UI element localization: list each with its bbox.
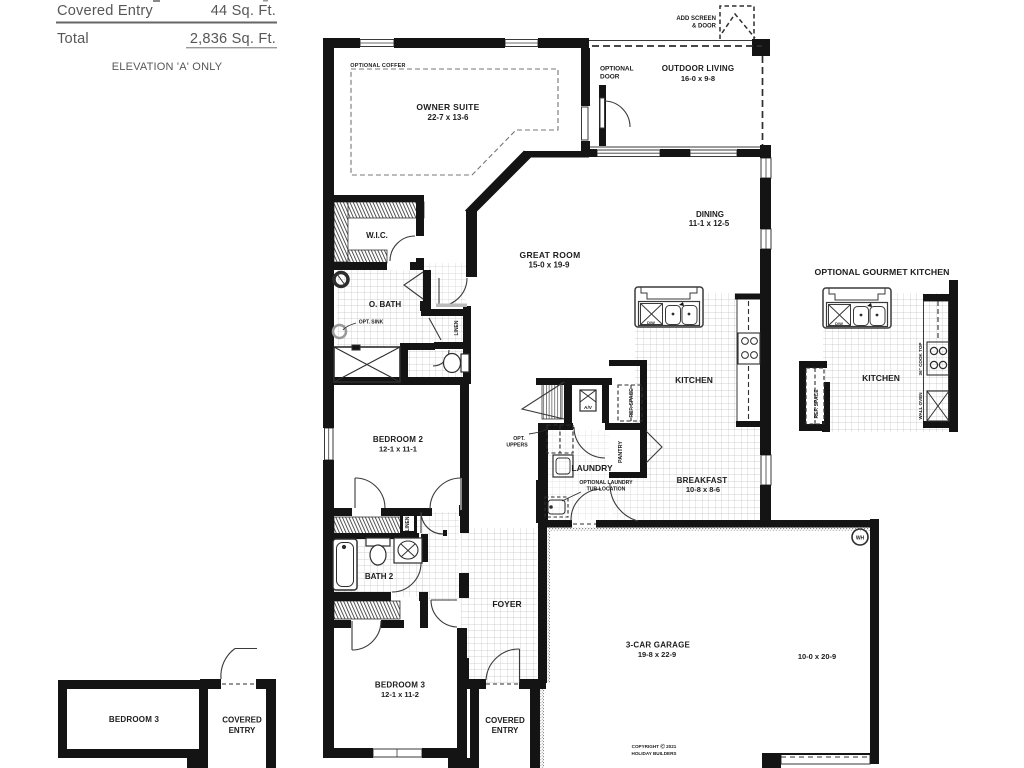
svg-text:& DOOR: & DOOR xyxy=(692,24,717,30)
svg-text:11-1 x 12-5: 11-1 x 12-5 xyxy=(689,219,730,228)
svg-text:BEDROOM 3: BEDROOM 3 xyxy=(109,715,160,724)
svg-text:22-7 x 13-6: 22-7 x 13-6 xyxy=(428,113,469,122)
svg-text:OPT. SINK: OPT. SINK xyxy=(359,320,384,326)
svg-text:UPPERS: UPPERS xyxy=(506,443,528,449)
svg-text:12-1 x 11-2: 12-1 x 11-2 xyxy=(381,690,419,699)
svg-text:GREAT ROOM: GREAT ROOM xyxy=(520,250,581,260)
svg-text:KITCHEN: KITCHEN xyxy=(862,373,900,383)
svg-text:44 Sq. Ft.: 44 Sq. Ft. xyxy=(211,3,276,19)
svg-text:W.I.C.: W.I.C. xyxy=(366,231,388,240)
svg-text:16-0 x 9-8: 16-0 x 9-8 xyxy=(681,74,715,83)
svg-text:2,836 Sq. Ft.: 2,836 Sq. Ft. xyxy=(190,31,276,47)
svg-text:ENTRY: ENTRY xyxy=(229,726,256,735)
svg-text:WALL OVEN: WALL OVEN xyxy=(918,392,923,420)
svg-text:OUTDOOR LIVING: OUTDOOR LIVING xyxy=(662,64,735,73)
svg-text:FOYER: FOYER xyxy=(492,599,521,609)
svg-text:PANTRY: PANTRY xyxy=(618,441,624,463)
svg-text:10-0 x 20-9: 10-0 x 20-9 xyxy=(798,652,836,661)
svg-text:BREAKFAST: BREAKFAST xyxy=(677,476,728,485)
svg-text:REF. SPACE: REF. SPACE xyxy=(814,389,820,419)
svg-text:OPTIONAL: OPTIONAL xyxy=(600,66,634,73)
svg-text:O. BATH: O. BATH xyxy=(369,300,402,309)
svg-text:OPTIONAL LAUNDRY: OPTIONAL LAUNDRY xyxy=(579,480,633,486)
svg-text:WH: WH xyxy=(856,536,865,542)
svg-text:3-CAR GARAGE: 3-CAR GARAGE xyxy=(626,641,691,650)
svg-text:OPT.: OPT. xyxy=(513,436,525,442)
svg-text:D/W: D/W xyxy=(835,321,843,326)
svg-text:KITCHEN: KITCHEN xyxy=(675,375,713,385)
svg-text:ENTRY: ENTRY xyxy=(492,726,519,735)
svg-text:COPYRIGHT Ⓒ 2021: COPYRIGHT Ⓒ 2021 xyxy=(632,743,677,750)
svg-text:12-1 x 11-1: 12-1 x 11-1 xyxy=(379,445,417,454)
svg-text:OPTIONAL GOURMET KITCHEN: OPTIONAL GOURMET KITCHEN xyxy=(815,267,950,277)
svg-text:OPTIONAL COFFER: OPTIONAL COFFER xyxy=(350,63,405,69)
svg-text:DINING: DINING xyxy=(696,210,724,219)
svg-text:COVERED: COVERED xyxy=(485,716,525,725)
svg-text:DOOR: DOOR xyxy=(600,74,620,81)
svg-text:Covered Entry: Covered Entry xyxy=(57,3,153,19)
svg-text:A/V: A/V xyxy=(584,405,593,411)
svg-text:OWNER SUITE: OWNER SUITE xyxy=(416,102,479,112)
svg-text:ADD SCREEN: ADD SCREEN xyxy=(676,16,716,22)
svg-text:TUB LOCATION: TUB LOCATION xyxy=(587,487,626,493)
svg-text:10-8 x 8-6: 10-8 x 8-6 xyxy=(686,485,720,494)
svg-text:36" COOK TOP: 36" COOK TOP xyxy=(918,343,923,376)
svg-text:15-0 x 19-9: 15-0 x 19-9 xyxy=(529,261,570,270)
svg-text:19-8 x 22-9: 19-8 x 22-9 xyxy=(638,650,676,659)
svg-text:LINEN: LINEN xyxy=(454,320,460,335)
svg-text:Total: Total xyxy=(57,31,89,47)
svg-text:COVERED: COVERED xyxy=(222,716,262,725)
svg-text:LAUNDRY: LAUNDRY xyxy=(571,463,613,473)
svg-text:BATH 2: BATH 2 xyxy=(365,572,394,581)
svg-text:REF. SPACE: REF. SPACE xyxy=(629,388,635,418)
svg-text:LINEN: LINEN xyxy=(405,516,411,531)
svg-text:BEDROOM 2: BEDROOM 2 xyxy=(373,435,424,444)
svg-text:HOLIDAY BUILDERS: HOLIDAY BUILDERS xyxy=(632,751,677,756)
svg-text:BEDROOM 3: BEDROOM 3 xyxy=(375,681,426,690)
svg-text:ELEVATION 'A' ONLY: ELEVATION 'A' ONLY xyxy=(112,61,223,73)
svg-text:D/W: D/W xyxy=(647,320,655,325)
